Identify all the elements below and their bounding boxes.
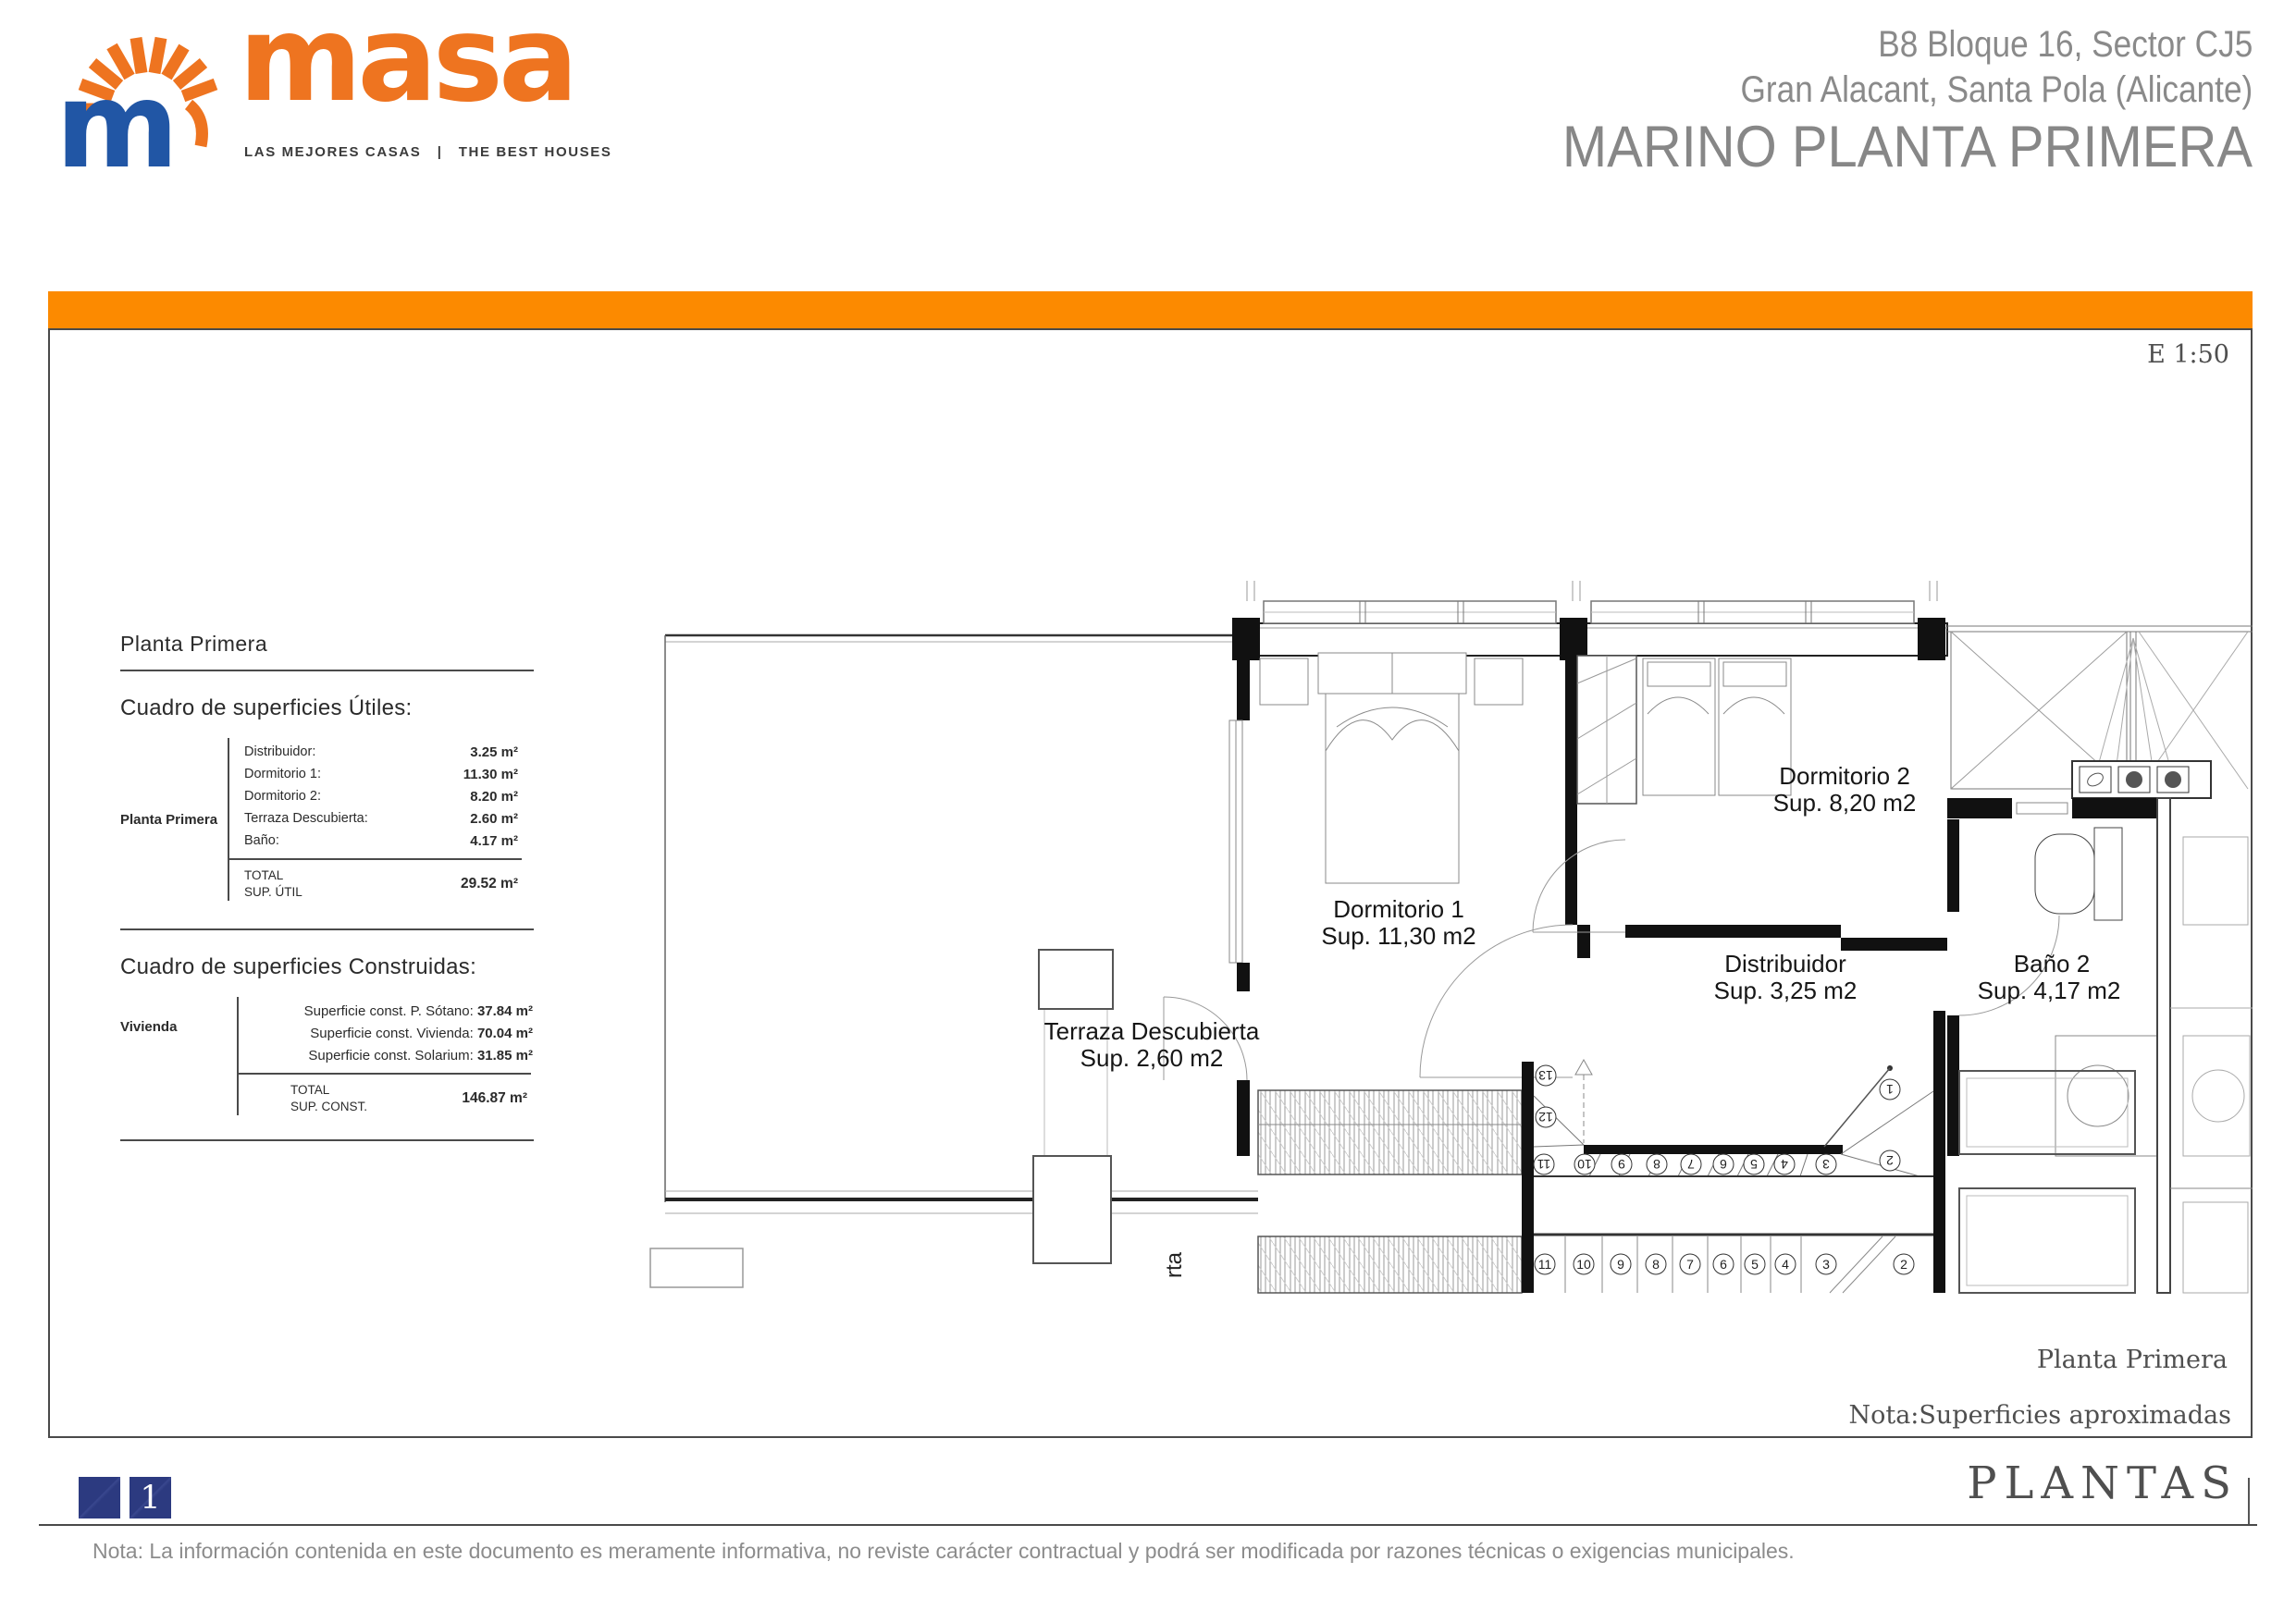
row-value: 70.04 m² xyxy=(477,1026,533,1041)
page-number-square: 1 xyxy=(130,1477,171,1518)
staircase: 13 12 11 10 9 8 7 6 5 4 3 2 1 xyxy=(1522,1011,1945,1293)
row-label: Distribuidor: xyxy=(244,744,315,760)
built-surfaces-table: Vivienda Superficie const. P. Sótano: 37… xyxy=(120,997,537,1115)
stair-step-number: 11 xyxy=(1537,1157,1551,1172)
brochure-page: m masa LAS MEJORES CASAS | THE BEST HOUS… xyxy=(0,0,2296,1623)
row-value: 11.30 m² xyxy=(463,767,518,782)
stair-step-number: 9 xyxy=(1617,1257,1624,1272)
row-value: 3.25 m² xyxy=(470,744,518,760)
row-label: Superficie const. Vivienda: xyxy=(310,1026,477,1041)
built-surfaces-heading: Cuadro de superficies Construidas: xyxy=(120,954,537,980)
project-block: B8 Bloque 16, Sector CJ5 xyxy=(1878,22,2253,68)
stair-step-number: 10 xyxy=(1576,1257,1591,1272)
total-sublabel: SUP. ÚTIL xyxy=(244,885,302,899)
stair-step-number: 8 xyxy=(1652,1257,1660,1272)
row-value: 31.85 m² xyxy=(477,1048,533,1064)
stair-step-number: 3 xyxy=(1822,1257,1830,1272)
stair-step-number: 5 xyxy=(1751,1257,1759,1272)
room-distribuidor: Distribuidor Sup. 3,25 m2 xyxy=(1714,950,1858,1004)
stair-step-number: 7 xyxy=(1687,1157,1695,1172)
svg-text:m: m xyxy=(56,57,179,168)
table-row: Baño: 4.17 m² xyxy=(244,833,518,849)
row-value: 37.84 m² xyxy=(477,1003,533,1019)
footer-tick xyxy=(2248,1478,2250,1526)
total-label: TOTAL xyxy=(290,1083,329,1097)
masa-m-icon: m xyxy=(44,20,229,168)
page-index-square xyxy=(79,1477,120,1518)
table-row: Dormitorio 1: 11.30 m² xyxy=(244,767,518,782)
stair-step-number: 2 xyxy=(1886,1153,1894,1168)
roof-edge-lines xyxy=(650,635,1258,1287)
stair-step-number: 4 xyxy=(1781,1157,1788,1172)
stair-step-number: 12 xyxy=(1538,1110,1553,1125)
row-label: Dormitorio 1: xyxy=(244,767,321,782)
room-area-label: Sup. 8,20 m2 xyxy=(1773,789,1917,817)
useful-surfaces-table: Planta Primera Distribuidor: 3.25 m² Dor… xyxy=(120,738,537,901)
facade-wall xyxy=(1232,581,1947,660)
table-row: Terraza Descubierta: 2.60 m² xyxy=(244,811,518,827)
room-area-label: Sup. 2,60 m2 xyxy=(1080,1044,1224,1072)
brand-wordmark: masa xyxy=(239,0,574,129)
table-row: Superficie const. P. Sótano: 37.84 m² xyxy=(253,1003,533,1019)
divider xyxy=(120,670,534,671)
divider xyxy=(120,928,534,930)
useful-group-label: Planta Primera xyxy=(120,738,228,901)
skylight-counter xyxy=(2072,761,2211,798)
masa-logo: m masa LAS MEJORES CASAS | THE BEST HOUS… xyxy=(44,17,636,174)
stair-step-number: 8 xyxy=(1653,1157,1660,1172)
room-terraza: Terraza Descubierta Sup. 2,60 m2 xyxy=(1044,1017,1260,1072)
room-area-label: Sup. 4,17 m2 xyxy=(1978,977,2121,1004)
project-header: B8 Bloque 16, Sector CJ5 Gran Alacant, S… xyxy=(1502,22,2253,181)
row-label: Superficie const. Solarium: xyxy=(308,1048,477,1064)
total-divider xyxy=(229,858,522,860)
sheet-series-title: PLANTAS xyxy=(1967,1457,2239,1509)
stair-step-number: 6 xyxy=(1720,1157,1727,1172)
row-label: Superficie const. P. Sótano: xyxy=(304,1003,477,1019)
table-row: Superficie const. Solarium: 31.85 m² xyxy=(253,1048,533,1064)
room-area-label: Sup. 3,25 m2 xyxy=(1714,977,1858,1004)
stair-step-number: 7 xyxy=(1686,1257,1694,1272)
room-dormitorio-1: Dormitorio 1 Sup. 11,30 m2 xyxy=(1164,653,1577,1156)
built-group-label: Vivienda xyxy=(120,997,237,1115)
stair-step-number: 5 xyxy=(1750,1157,1758,1172)
total-sublabel: SUP. CONST. xyxy=(290,1100,367,1113)
total-row: TOTAL SUP. CONST. 146.87 m² xyxy=(253,1082,527,1115)
stair-step-number: 9 xyxy=(1618,1157,1625,1172)
clipped-vertical-label: rta xyxy=(1162,1251,1187,1278)
brand-tagline: LAS MEJORES CASAS | THE BEST HOUSES xyxy=(244,144,611,160)
total-value: 146.87 m² xyxy=(462,1090,527,1107)
wardrobe xyxy=(1577,656,1636,804)
room-label: Baño 2 xyxy=(2014,950,2090,977)
project-location: Gran Alacant, Santa Pola (Alicante) xyxy=(1740,68,2253,113)
total-value: 29.52 m² xyxy=(461,876,518,892)
table-row: Dormitorio 2: 8.20 m² xyxy=(244,789,518,805)
row-value: 8.20 m² xyxy=(470,789,518,805)
room-area-label: Sup. 11,30 m2 xyxy=(1321,922,1475,950)
room-label: Dormitorio 1 xyxy=(1333,895,1464,923)
stair-step-number: 6 xyxy=(1720,1257,1727,1272)
total-row: TOTAL SUP. ÚTIL 29.52 m² xyxy=(244,867,518,901)
divider xyxy=(120,1139,534,1141)
room-label: Terraza Descubierta xyxy=(1044,1017,1260,1045)
page-number: 1 xyxy=(140,1480,160,1517)
room-label: Distribuidor xyxy=(1724,950,1846,977)
floor-plan-drawing: Dormitorio 1 Sup. 11,30 m2 Dormitorio 2 xyxy=(648,527,2253,1295)
panel-title: Planta Primera xyxy=(120,632,537,657)
terrace-columns xyxy=(1033,950,1113,1263)
table-row: Superficie const. Vivienda: 70.04 m² xyxy=(253,1026,533,1041)
row-label: Baño: xyxy=(244,833,279,849)
legal-disclaimer: Nota: La información contenida en este d… xyxy=(93,1539,1795,1564)
approx-note: Nota:Superficies aproximadas xyxy=(1848,1401,2231,1430)
stair-step-number: 4 xyxy=(1782,1257,1789,1272)
room-bano-2: Baño 2 Sup. 4,17 m2 xyxy=(1947,798,2253,1293)
row-label: Dormitorio 2: xyxy=(244,789,321,805)
table-row: Distribuidor: 3.25 m² xyxy=(244,744,518,760)
stair-step-number: 3 xyxy=(1822,1157,1830,1172)
total-label: TOTAL xyxy=(244,868,283,882)
drawing-scale: E 1:50 xyxy=(2147,340,2229,369)
stair-step-number: 2 xyxy=(1900,1257,1907,1272)
deck-hatch xyxy=(1258,1090,1522,1293)
stair-step-number: 11 xyxy=(1538,1257,1552,1272)
row-label: Terraza Descubierta: xyxy=(244,811,368,827)
stair-step-number: 13 xyxy=(1538,1068,1553,1083)
page-title: MARINO PLANTA PRIMERA xyxy=(1562,113,2253,181)
footer-divider xyxy=(39,1524,2257,1526)
row-value: 4.17 m² xyxy=(470,833,518,849)
total-divider xyxy=(239,1073,531,1075)
room-label: Dormitorio 2 xyxy=(1779,762,1910,790)
surfaces-panel: Planta Primera Cuadro de superficies Úti… xyxy=(120,632,537,1141)
orange-accent-bar xyxy=(48,291,2253,328)
stair-step-number: 10 xyxy=(1577,1157,1592,1172)
plan-caption: Planta Primera xyxy=(2037,1346,2228,1374)
stair-step-number: 1 xyxy=(1886,1082,1894,1097)
useful-surfaces-heading: Cuadro de superficies Útiles: xyxy=(120,695,537,721)
row-value: 2.60 m² xyxy=(470,811,518,827)
